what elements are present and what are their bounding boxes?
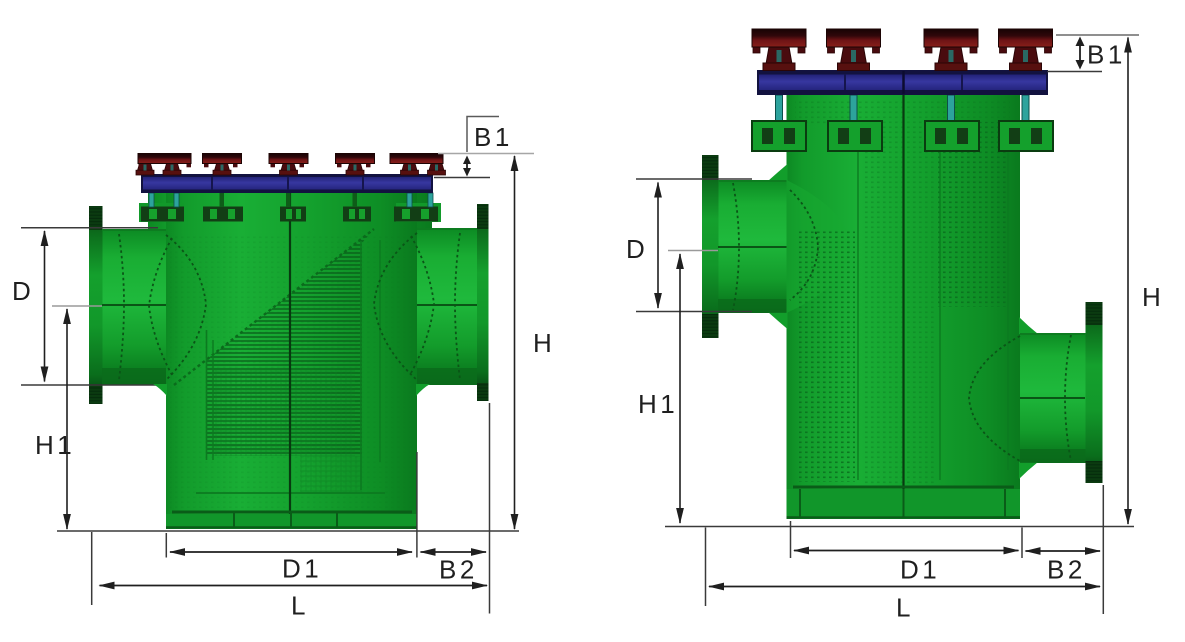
svg-text:H: H xyxy=(1142,282,1161,312)
svg-text:L: L xyxy=(896,593,910,623)
svg-text:D: D xyxy=(12,276,31,306)
svg-text:B2: B2 xyxy=(1047,555,1086,585)
svg-text:B1: B1 xyxy=(1087,40,1126,70)
svg-text:D1: D1 xyxy=(282,554,322,584)
svg-text:H1: H1 xyxy=(35,430,75,460)
svg-text:L: L xyxy=(291,591,305,621)
svg-text:B1: B1 xyxy=(474,122,513,152)
svg-text:H: H xyxy=(533,328,552,358)
svg-text:D1: D1 xyxy=(900,555,940,585)
svg-text:D: D xyxy=(626,234,645,264)
svg-text:B2: B2 xyxy=(439,555,478,585)
svg-text:H1: H1 xyxy=(638,389,678,419)
